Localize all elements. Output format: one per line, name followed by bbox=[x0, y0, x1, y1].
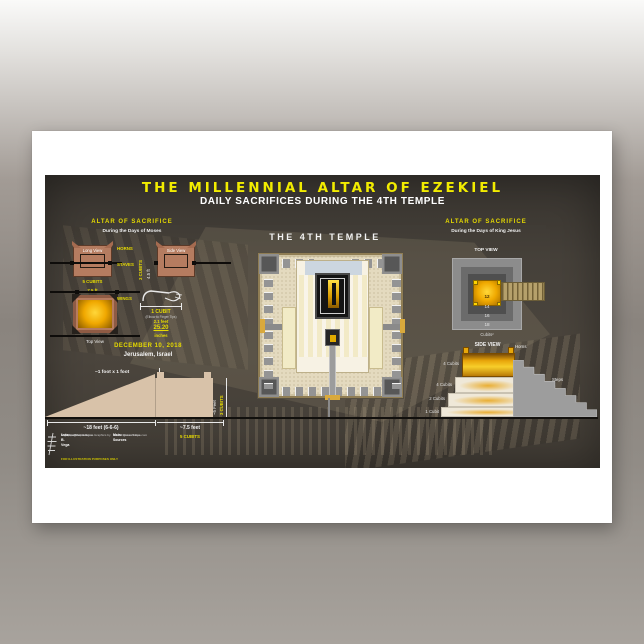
rings-unit: Cubits² bbox=[452, 332, 522, 337]
cubit-label: 1 CUBIT bbox=[133, 309, 189, 315]
ramp-profile bbox=[45, 374, 155, 417]
altar-width-cubits: 5 CUBITS bbox=[157, 434, 223, 439]
temple-floor-plan bbox=[258, 253, 403, 398]
cubit-inches-unit: inches bbox=[133, 333, 189, 338]
moses-altar-long-view: Long View bbox=[73, 245, 112, 277]
horns-label: Horns bbox=[515, 344, 526, 349]
altar-of-sacrifice-plan bbox=[325, 329, 340, 346]
cubit-inches-value: 25.20 bbox=[133, 325, 189, 331]
wall-chambers-right bbox=[392, 279, 401, 389]
top-view-label: TOP VIEW bbox=[426, 248, 546, 253]
temple-building bbox=[315, 273, 350, 319]
left-panel-subheading: During the Days of Moses bbox=[57, 229, 207, 234]
stave-end bbox=[75, 290, 79, 294]
altar-frame bbox=[164, 254, 188, 268]
tier-label-3: 2 Cubits bbox=[401, 396, 445, 401]
poster-place: Jerusalem, Israel bbox=[88, 352, 208, 358]
left-panel-heading: ALTAR OF SACRIFICE bbox=[57, 219, 207, 225]
forearm-cubit-icon bbox=[140, 284, 185, 306]
height-feet-label: 4.5 ft bbox=[146, 251, 151, 279]
stave-pole bbox=[50, 291, 140, 293]
wings-label: WINGS bbox=[117, 296, 132, 301]
corner-chamber bbox=[382, 254, 402, 274]
ring-size-14: 14 bbox=[452, 304, 522, 309]
ring-size-18: 18 bbox=[452, 322, 522, 327]
altar-steps-side-view bbox=[513, 360, 597, 417]
tier-label-1: 4 Cubits bbox=[415, 361, 459, 366]
product-backdrop: THE MILLENNIAL ALTAR OF EZEKIEL DAILY SA… bbox=[0, 0, 644, 644]
tier-label-4: 1 Cubit bbox=[395, 409, 439, 414]
poster-title: THE MILLENNIAL ALTAR OF EZEKIEL bbox=[45, 180, 600, 196]
ramp-altar-block bbox=[155, 378, 213, 417]
wall-chambers-left bbox=[264, 279, 273, 389]
right-panel-subheading: During the Days of King Jesus bbox=[426, 229, 546, 234]
height-measure-line bbox=[226, 378, 227, 417]
postscripts-logo-icon bbox=[46, 432, 59, 457]
ground-line bbox=[45, 417, 598, 419]
altar-width-bracket bbox=[157, 422, 223, 423]
cubit-feet: 2.1 feet bbox=[133, 319, 189, 324]
stave-pole bbox=[50, 335, 140, 337]
poster-date: DECEMBER 10, 2018 bbox=[88, 343, 208, 349]
ramp-length-label: ~18 feet (6-6-6) bbox=[47, 425, 155, 431]
horn-dot bbox=[473, 280, 478, 285]
width-cubits-label: 5 CUBITS bbox=[73, 279, 112, 284]
altar-hearth bbox=[330, 335, 336, 342]
altar-tier-hearth bbox=[462, 353, 515, 377]
center-heading: THE 4TH TEMPLE bbox=[225, 232, 425, 242]
side-view-label: Side View bbox=[158, 248, 194, 253]
ring-size-16: 16 bbox=[452, 313, 522, 318]
ramp-length-bracket bbox=[47, 422, 155, 423]
source-item: Round Saturn's Eye bbox=[113, 433, 140, 437]
poster-sheet[interactable]: THE MILLENNIAL ALTAR OF EZEKIEL DAILY SA… bbox=[32, 131, 612, 523]
corner-chamber bbox=[259, 254, 279, 274]
stave-pole bbox=[195, 262, 231, 264]
holy-of-holies bbox=[332, 283, 336, 305]
bracket-tick bbox=[223, 420, 224, 426]
poster-art: THE MILLENNIAL ALTAR OF EZEKIEL DAILY SA… bbox=[45, 175, 600, 468]
gate-east bbox=[400, 319, 405, 333]
right-panel-heading: ALTAR OF SACRIFICE bbox=[426, 219, 546, 225]
altar-frame bbox=[80, 254, 105, 268]
altar-tier-2 bbox=[455, 377, 521, 393]
plan-path-extension bbox=[328, 398, 330, 417]
steps-label: Steps bbox=[552, 377, 563, 382]
staves-label: STAVES bbox=[117, 262, 134, 267]
side-court-right bbox=[369, 307, 383, 369]
moses-altar-top-view bbox=[73, 295, 117, 333]
processional-path bbox=[329, 346, 336, 398]
wall-passage bbox=[383, 324, 400, 330]
bracket-tick bbox=[155, 420, 156, 426]
wall-passage bbox=[265, 324, 282, 330]
credits-disclaimer: FOR ILLUSTRATION PURPOSES ONLY bbox=[61, 457, 118, 461]
stave-end bbox=[108, 261, 112, 265]
ramp-altar-horn bbox=[157, 372, 164, 379]
ramp-horn-note: ~1 foot x 1 foot bbox=[95, 370, 129, 375]
altar-width-label: ~7.5 feet bbox=[157, 425, 223, 431]
ramp-height-feet: ~5 Feet bbox=[212, 381, 217, 415]
stave-end bbox=[70, 261, 74, 265]
moses-altar-side-view: Side View bbox=[157, 245, 195, 277]
credits-website[interactable]: www.PostScripts.org bbox=[61, 433, 89, 437]
altar-hearth bbox=[78, 300, 112, 328]
tier-label-2: 4 Cubits bbox=[408, 382, 452, 387]
long-view-label: Long View bbox=[74, 248, 111, 253]
side-court-left bbox=[282, 307, 296, 369]
stave-end bbox=[115, 290, 119, 294]
horn-dot bbox=[497, 280, 502, 285]
horns-label: HORNS bbox=[117, 246, 133, 251]
cubit-bracket bbox=[140, 306, 182, 307]
height-cubits-label: 3 CUBITS bbox=[138, 248, 143, 280]
poster-subtitle: DAILY SACRIFICES DURING THE 4TH TEMPLE bbox=[45, 196, 600, 207]
ring-size-12: 12 bbox=[452, 294, 522, 299]
ramp-height-cubits: 3 CUBITS bbox=[219, 381, 224, 415]
ramp-altar-horn bbox=[204, 372, 211, 379]
ezekiel-altar-hearth bbox=[473, 280, 501, 306]
stave-end bbox=[154, 261, 158, 265]
